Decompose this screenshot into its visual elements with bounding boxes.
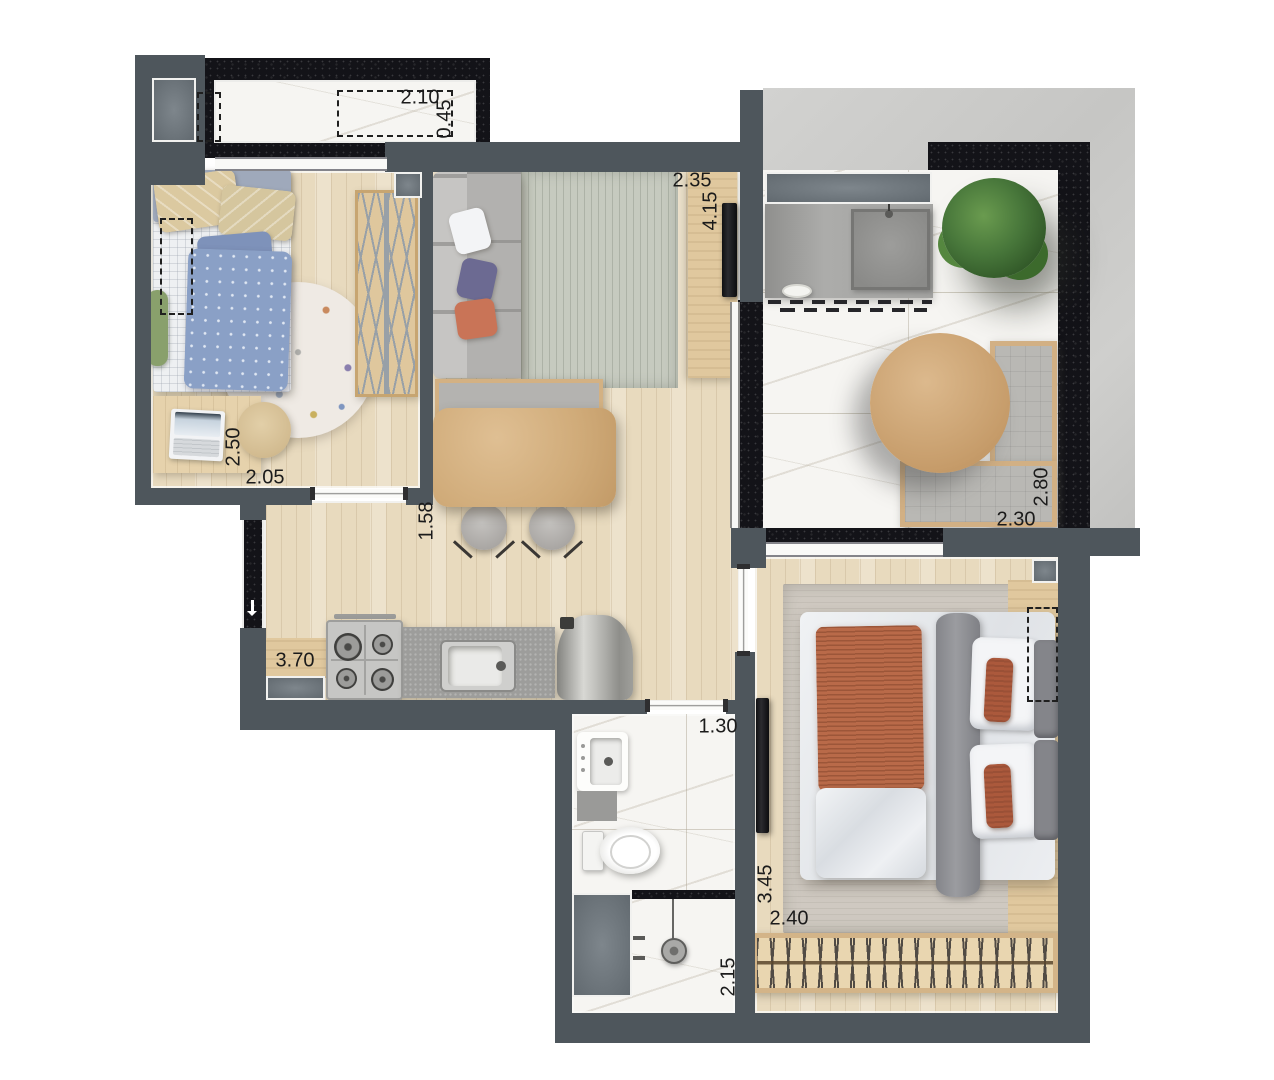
dim-master-length: 3.45: [755, 865, 778, 904]
wall-segment: [555, 712, 572, 1030]
stove-handle: [334, 614, 396, 619]
living-tv: [722, 203, 737, 297]
master-duvet-fold: [816, 788, 926, 878]
kitchen-faucet: [496, 661, 506, 671]
balcony-sink: [851, 209, 930, 290]
wall-segment: [135, 160, 151, 505]
dim-kitchen-length: 3.70: [276, 650, 315, 673]
master-blanket-terracotta: [816, 625, 925, 792]
dim-balcony-width: 2.30: [997, 509, 1036, 532]
laptop-keyboard: [173, 438, 219, 457]
balcony-ledge-box: [765, 172, 932, 204]
ac-unit-marker: [160, 218, 193, 315]
glass-partition-dashes: [768, 300, 932, 304]
stove-burner: [336, 668, 357, 689]
shower-head-icon: [661, 938, 687, 964]
dining-chair: [461, 504, 507, 550]
shaft-box: [394, 172, 422, 198]
bedroom1-door: [312, 489, 406, 498]
shaft-box: [266, 676, 325, 700]
bedroom1-window: [215, 157, 387, 171]
master-pillow-orange: [983, 657, 1013, 722]
shaft-box: [1032, 559, 1058, 583]
stove-burner: [372, 634, 393, 655]
entry-arrow-icon: [251, 600, 254, 613]
balcony-round-table: [870, 333, 1010, 473]
shower-pipe: [672, 899, 674, 943]
shaft-box: [572, 893, 632, 997]
dim-shower-length: 2.15: [718, 958, 741, 997]
wall-segment: [385, 142, 763, 172]
bathroom-half-wall: [577, 791, 617, 821]
wall-segment: [731, 528, 766, 568]
bathroom-faucet: [604, 757, 613, 766]
glass-partition-dashes: [776, 308, 932, 312]
bathroom-door: [647, 701, 726, 710]
granite-shower-divider: [632, 890, 735, 899]
dim-bedroom1-length: 2.50: [223, 428, 246, 467]
dim-living-width: 2.35: [673, 170, 712, 193]
shower-valve: [633, 936, 645, 940]
wall-segment: [740, 90, 763, 302]
wall-segment: [1058, 528, 1090, 1043]
dim-master-width: 2.40: [770, 908, 809, 931]
stove: [326, 620, 403, 700]
dim-living-length: 4.15: [700, 192, 723, 231]
headboard-cushion: [1034, 740, 1059, 840]
balcony-dish: [782, 284, 812, 298]
master-pillow-orange: [983, 763, 1013, 828]
granite-balcony-right: [1056, 142, 1090, 528]
dim-dining-width: 1.58: [416, 502, 439, 541]
wall-segment: [1090, 528, 1140, 556]
balcony-faucet: [885, 210, 893, 218]
wall-segment: [240, 490, 266, 520]
master-window: [766, 542, 943, 557]
living-rug: [521, 171, 678, 388]
laptop-screen: [174, 412, 221, 437]
master-tv: [756, 698, 769, 833]
dim-bathroom-width: 1.30: [699, 716, 738, 739]
tank-valve: [560, 617, 574, 629]
bathroom-tile-joint: [572, 829, 735, 830]
shaft-box: [152, 78, 196, 142]
wall-segment: [555, 1013, 1090, 1043]
bathroom-tile-joint: [686, 714, 687, 890]
wall-segment: [240, 700, 572, 730]
sofa-pillow-orange: [454, 297, 499, 340]
dim-bedroom1-width: 2.05: [246, 467, 285, 490]
floor-plan: 2.10 0.45 2.35 4.15 2.50 2.05 1.58 2.80 …: [0, 0, 1274, 1080]
wall-segment: [943, 528, 1060, 557]
wall-segment: [135, 488, 312, 505]
laptop: [169, 409, 226, 462]
dim-ledge-depth: 0.45: [434, 100, 457, 139]
granite-slider-track: [738, 300, 763, 528]
dining-table: [433, 408, 616, 507]
slatted-shelf: [355, 190, 418, 397]
balcony-sliding-door: [730, 302, 740, 528]
toilet: [600, 827, 660, 874]
ac-unit-marker: [1027, 607, 1058, 702]
kid-blanket: [184, 248, 293, 392]
shower-valve: [633, 956, 645, 960]
potted-plant: [942, 178, 1046, 278]
ac-unit-marker: [197, 92, 221, 142]
dim-balcony-length: 2.80: [1031, 468, 1054, 507]
faucet-handles: [581, 744, 585, 748]
wardrobe-hangers: [752, 933, 1058, 993]
dining-chair: [529, 504, 575, 550]
stove-burner: [334, 633, 362, 661]
stove-burner: [371, 668, 394, 691]
master-door: [739, 566, 748, 654]
kitchen-sink-basin: [448, 646, 502, 686]
